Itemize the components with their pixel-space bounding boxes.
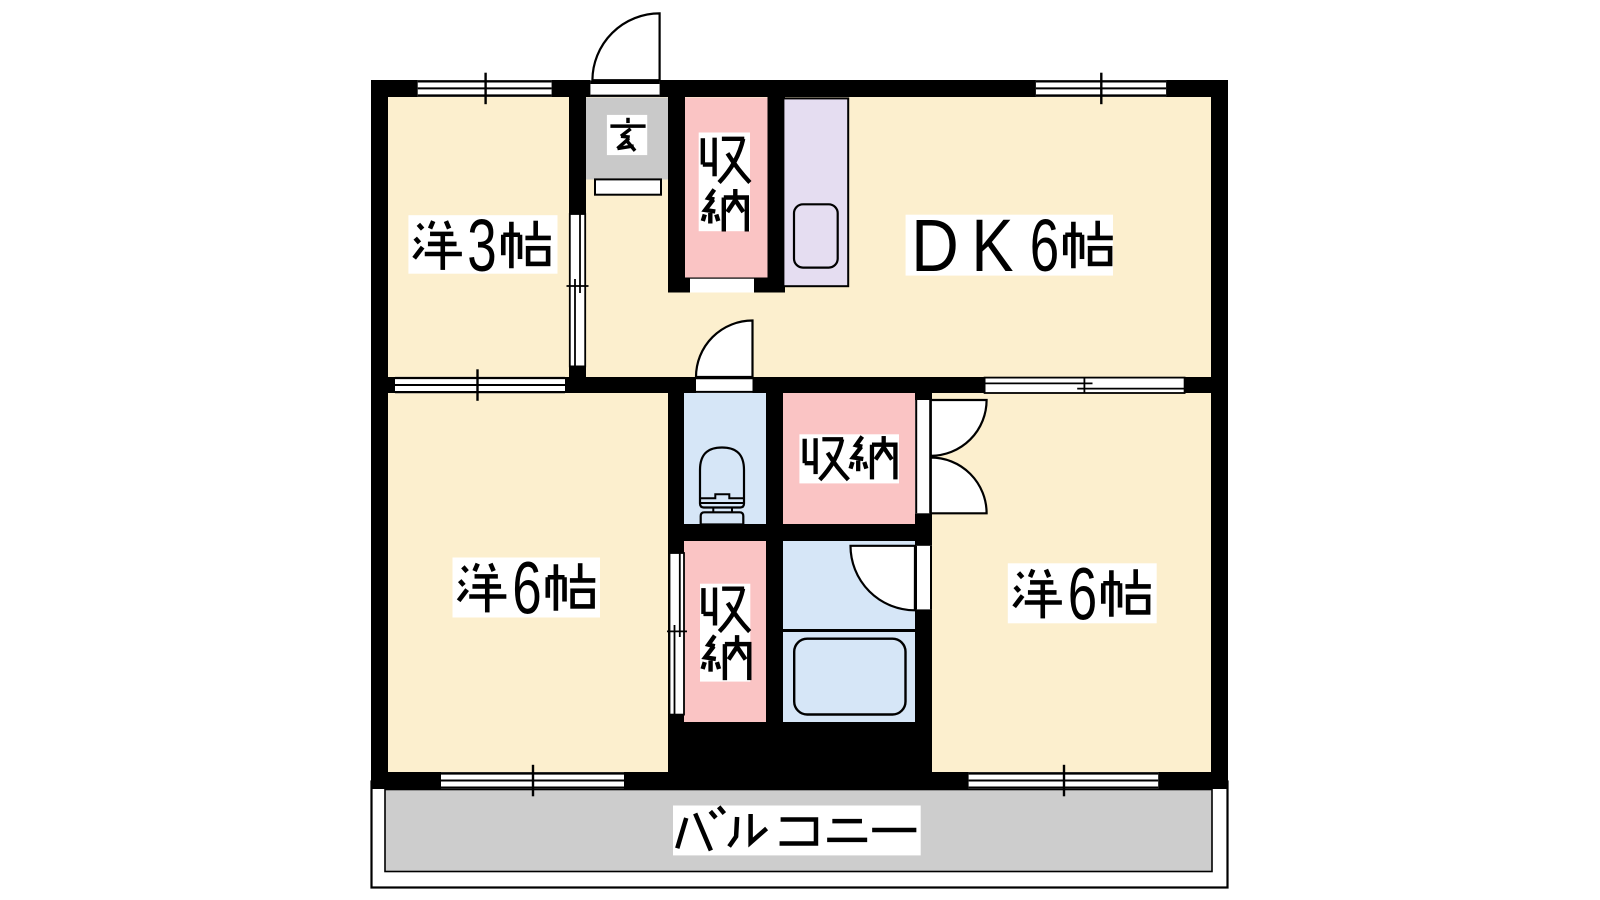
svg-text:K: K (971, 204, 1013, 287)
svg-text:6: 6 (1030, 203, 1059, 287)
svg-text:6: 6 (512, 545, 541, 629)
svg-text:D: D (911, 205, 959, 287)
svg-text:3: 3 (467, 203, 496, 287)
svg-text:6: 6 (1068, 551, 1097, 635)
